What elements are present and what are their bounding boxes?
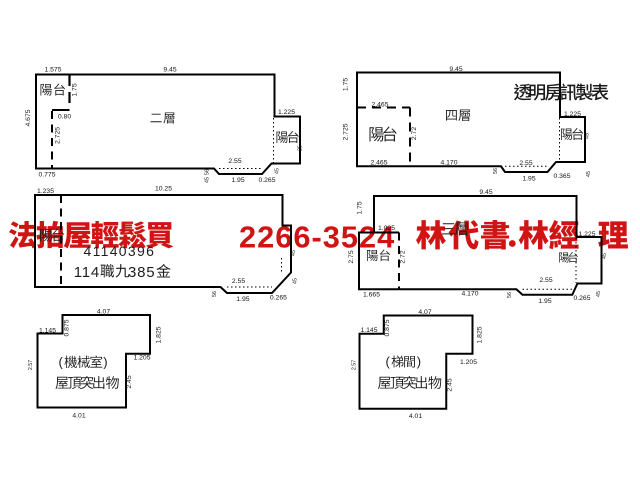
svg-text:25: 25 bbox=[298, 145, 304, 151]
svg-text:45: 45 bbox=[275, 168, 281, 174]
svg-text:56: 56 bbox=[212, 291, 218, 297]
svg-text:0.80: 0.80 bbox=[58, 114, 71, 121]
svg-text:2.465: 2.465 bbox=[370, 160, 387, 167]
svg-text:2266-3524: 2266-3524 bbox=[239, 219, 395, 254]
svg-text:2.57: 2.57 bbox=[28, 360, 34, 370]
svg-text:56: 56 bbox=[507, 292, 513, 298]
svg-text:10.25: 10.25 bbox=[155, 186, 172, 193]
svg-text:45: 45 bbox=[585, 133, 591, 139]
svg-text:2.45: 2.45 bbox=[126, 375, 133, 388]
svg-text:0.875: 0.875 bbox=[384, 319, 391, 336]
svg-text:0.775: 0.775 bbox=[38, 172, 55, 179]
svg-text:4.07: 4.07 bbox=[97, 309, 110, 316]
svg-text:56: 56 bbox=[493, 168, 499, 174]
svg-text:1.235: 1.235 bbox=[37, 188, 54, 195]
svg-text:1.75: 1.75 bbox=[357, 201, 364, 214]
svg-text:114: 114 bbox=[74, 264, 100, 281]
svg-text:45: 45 bbox=[602, 253, 608, 259]
svg-text:4.170: 4.170 bbox=[440, 160, 457, 167]
svg-text:2.72: 2.72 bbox=[400, 250, 407, 263]
svg-text:1.825: 1.825 bbox=[156, 326, 163, 343]
svg-text:(: ( bbox=[59, 355, 64, 370]
svg-text:9.45: 9.45 bbox=[479, 189, 492, 196]
svg-text:4.675: 4.675 bbox=[25, 109, 32, 126]
svg-text:1.75: 1.75 bbox=[343, 78, 350, 91]
svg-text:1.95: 1.95 bbox=[522, 176, 535, 183]
svg-text:0.265: 0.265 bbox=[270, 295, 287, 302]
svg-text:1.575: 1.575 bbox=[44, 67, 61, 74]
svg-text:1.225: 1.225 bbox=[278, 109, 295, 116]
svg-text:4.170: 4.170 bbox=[461, 291, 478, 298]
svg-text:2.45: 2.45 bbox=[447, 378, 454, 391]
svg-text:1.145: 1.145 bbox=[360, 327, 377, 334]
svg-text:0.365: 0.365 bbox=[553, 173, 570, 180]
svg-text:41140396: 41140396 bbox=[84, 243, 156, 259]
svg-text:56: 56 bbox=[205, 169, 211, 175]
svg-text:9.45: 9.45 bbox=[163, 67, 176, 74]
svg-text:1.825: 1.825 bbox=[477, 326, 484, 343]
svg-text:1.205: 1.205 bbox=[133, 355, 150, 362]
svg-text:0.265: 0.265 bbox=[573, 295, 590, 302]
svg-text:2.72: 2.72 bbox=[411, 127, 418, 140]
svg-text:45: 45 bbox=[586, 171, 592, 177]
svg-text:1.025: 1.025 bbox=[378, 225, 395, 232]
svg-text:1.145: 1.145 bbox=[39, 328, 56, 335]
svg-text:2.75: 2.75 bbox=[348, 250, 355, 263]
svg-text:2.725: 2.725 bbox=[343, 123, 350, 140]
svg-text:45: 45 bbox=[291, 250, 297, 256]
svg-text:9.45: 9.45 bbox=[449, 66, 462, 73]
svg-text:1.225: 1.225 bbox=[564, 111, 581, 118]
svg-text:1.225: 1.225 bbox=[578, 231, 595, 238]
svg-text:4.01: 4.01 bbox=[409, 413, 422, 420]
svg-text:45: 45 bbox=[293, 278, 299, 284]
svg-text:385: 385 bbox=[128, 264, 155, 281]
svg-text:4.07: 4.07 bbox=[418, 309, 431, 316]
svg-text:0.265: 0.265 bbox=[258, 177, 275, 184]
svg-text:0.875: 0.875 bbox=[64, 319, 71, 336]
svg-text:2.55: 2.55 bbox=[232, 278, 245, 285]
svg-text:2.55: 2.55 bbox=[519, 160, 532, 167]
svg-text:1.75: 1.75 bbox=[72, 83, 79, 96]
svg-text:1.95: 1.95 bbox=[236, 296, 249, 303]
svg-text:2.465: 2.465 bbox=[371, 102, 388, 109]
svg-text:2.55: 2.55 bbox=[228, 158, 241, 165]
svg-text:): ) bbox=[417, 354, 421, 369]
svg-text:45: 45 bbox=[596, 291, 602, 297]
svg-text:45: 45 bbox=[205, 177, 211, 183]
svg-text:1.205: 1.205 bbox=[460, 359, 477, 366]
svg-text:(: ( bbox=[386, 354, 391, 369]
svg-text:2.725: 2.725 bbox=[55, 127, 62, 144]
svg-text:1.95: 1.95 bbox=[538, 298, 551, 305]
svg-text:1.95: 1.95 bbox=[231, 177, 244, 184]
svg-text:2.57: 2.57 bbox=[352, 360, 358, 370]
svg-text:): ) bbox=[103, 355, 107, 370]
svg-text:2.55: 2.55 bbox=[539, 277, 552, 284]
svg-text:1.665: 1.665 bbox=[363, 292, 380, 299]
svg-text:4.01: 4.01 bbox=[72, 413, 85, 420]
